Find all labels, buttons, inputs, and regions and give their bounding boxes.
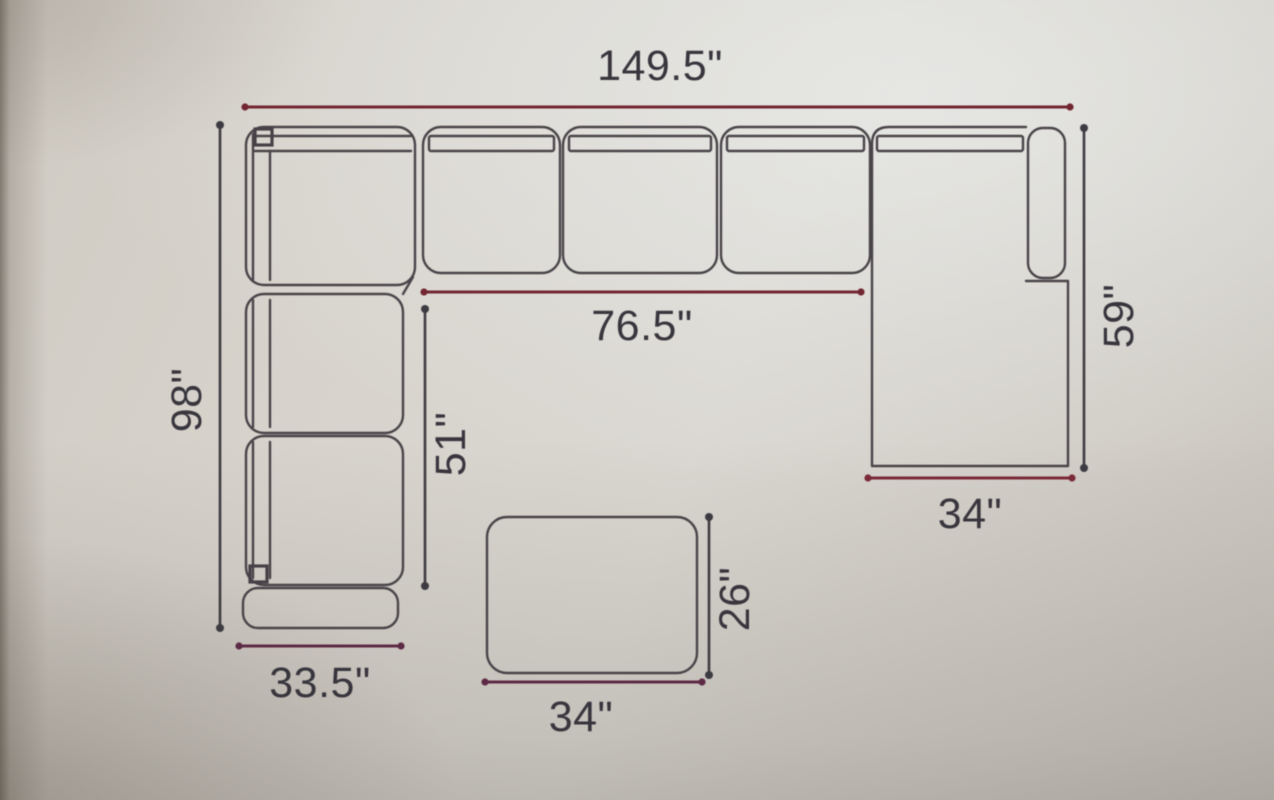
dim-endpoint: [1068, 474, 1075, 481]
dim-endpoint: [216, 624, 224, 632]
diagram-photo: 149.5" 98" 76.5" 51": [0, 0, 1274, 800]
dim-endpoint: [421, 582, 429, 590]
seat-backrest: [429, 136, 554, 151]
dim-chaise-length: 59": [1080, 124, 1143, 472]
seat-backrest: [569, 136, 711, 151]
corner-seat: [246, 127, 415, 294]
dim-overall-depth: 98": [163, 121, 224, 632]
dim-endpoint: [420, 288, 427, 295]
dim-ottoman-width: 34": [481, 678, 705, 741]
dim-label-chaise-width: 34": [938, 490, 1003, 538]
dim-label-ottoman-width: 34": [549, 693, 614, 741]
dim-endpoint: [698, 678, 705, 685]
dim-label-seat-run-depth: 51": [427, 412, 475, 477]
dim-endpoint: [235, 642, 242, 649]
dim-endpoint: [241, 103, 248, 110]
dim-endpoint: [1080, 464, 1088, 472]
chaise: [872, 127, 1068, 466]
chaise-backrest: [877, 136, 1023, 151]
dim-label-overall-depth: 98": [163, 368, 211, 433]
dim-left-section-width: 33.5": [235, 642, 404, 707]
dim-endpoint: [864, 474, 871, 481]
dim-label-overall-width: 149.5": [597, 42, 723, 90]
dim-label-left-section-width: 33.5": [269, 659, 370, 707]
dim-endpoint: [481, 678, 488, 685]
ottoman-outline: [487, 517, 697, 673]
left-front-armrest: [243, 588, 398, 628]
seat-cushion: [423, 127, 560, 273]
dim-endpoint: [397, 642, 404, 649]
seat-cushion: [721, 127, 870, 273]
chaise-armrest: [1028, 128, 1065, 278]
dim-seat-run-depth: 51": [421, 305, 475, 590]
dim-label-chaise-length: 59": [1095, 284, 1143, 349]
dim-seat-run-width: 76.5": [420, 288, 864, 350]
dim-overall-width: 149.5": [241, 42, 1073, 111]
dim-label-ottoman-depth: 26": [711, 567, 759, 632]
dim-chaise-width: 34": [864, 474, 1075, 538]
sectional-sofa-diagram: 149.5" 98" 76.5" 51": [0, 0, 1274, 800]
dim-endpoint: [1080, 124, 1088, 132]
dim-endpoint: [421, 305, 429, 313]
seat-cushion: [563, 127, 717, 273]
dim-label-seat-run-width: 76.5": [591, 302, 692, 350]
corner-fold-line: [403, 277, 413, 294]
dim-endpoint: [705, 671, 713, 679]
dim-endpoint: [705, 513, 713, 521]
seat-backrest: [727, 136, 864, 151]
sofa-outline: [243, 127, 1068, 673]
dim-ottoman-depth: 26": [705, 513, 759, 679]
top-seat-cushions: [423, 127, 870, 273]
left-seat-cushions: [243, 294, 403, 628]
chaise-outline: [872, 127, 1068, 466]
dim-endpoint: [1066, 103, 1073, 110]
dim-endpoint: [216, 121, 224, 129]
dim-endpoint: [857, 288, 864, 295]
